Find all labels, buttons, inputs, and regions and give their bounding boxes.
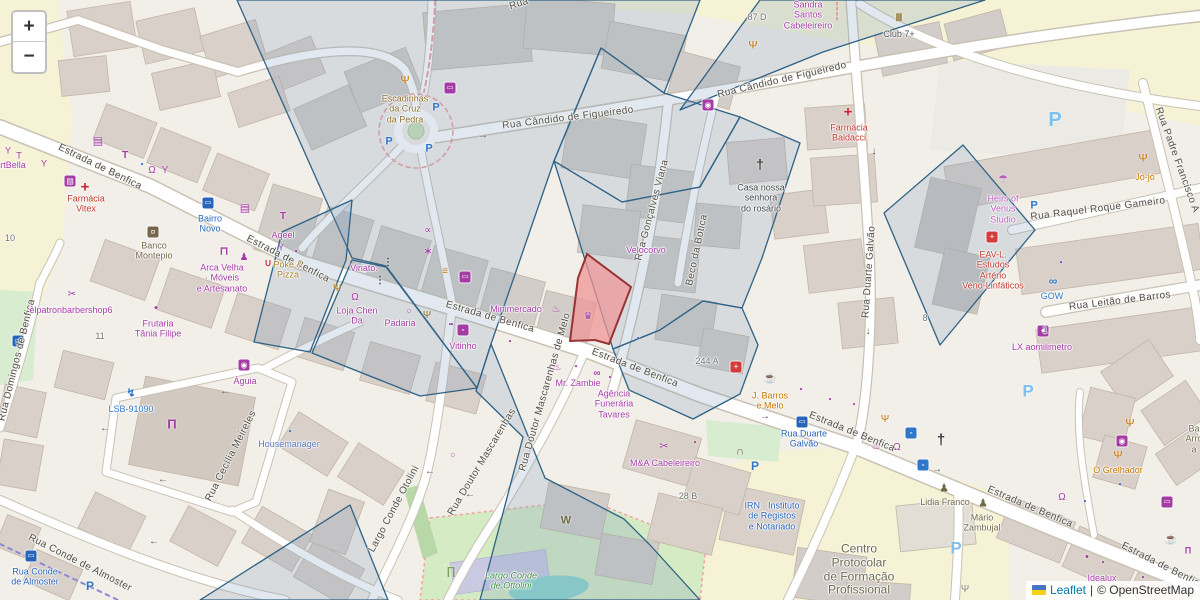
basemap-svg xyxy=(0,0,1200,600)
attribution-separator: | xyxy=(1090,583,1093,597)
attribution-bar: Leaflet | © OpenStreetMap xyxy=(1026,581,1200,600)
ukraine-flag-icon xyxy=(1032,585,1046,595)
zoom-in-button[interactable]: + xyxy=(13,12,45,42)
map-canvas[interactable]: ▤TΩY▤+YTYΨⅢ◉+†Ψ▭⋮⋮∝∗≡▭¤▭▤T⊓♟∪Y●✂●ΩΨ○Ψ▫●◉… xyxy=(0,0,1200,600)
zoom-out-button[interactable]: − xyxy=(13,42,45,72)
zoom-control: + − xyxy=(11,10,47,74)
leaflet-link[interactable]: Leaflet xyxy=(1050,583,1086,597)
osm-copyright[interactable]: © OpenStreetMap xyxy=(1097,583,1194,597)
